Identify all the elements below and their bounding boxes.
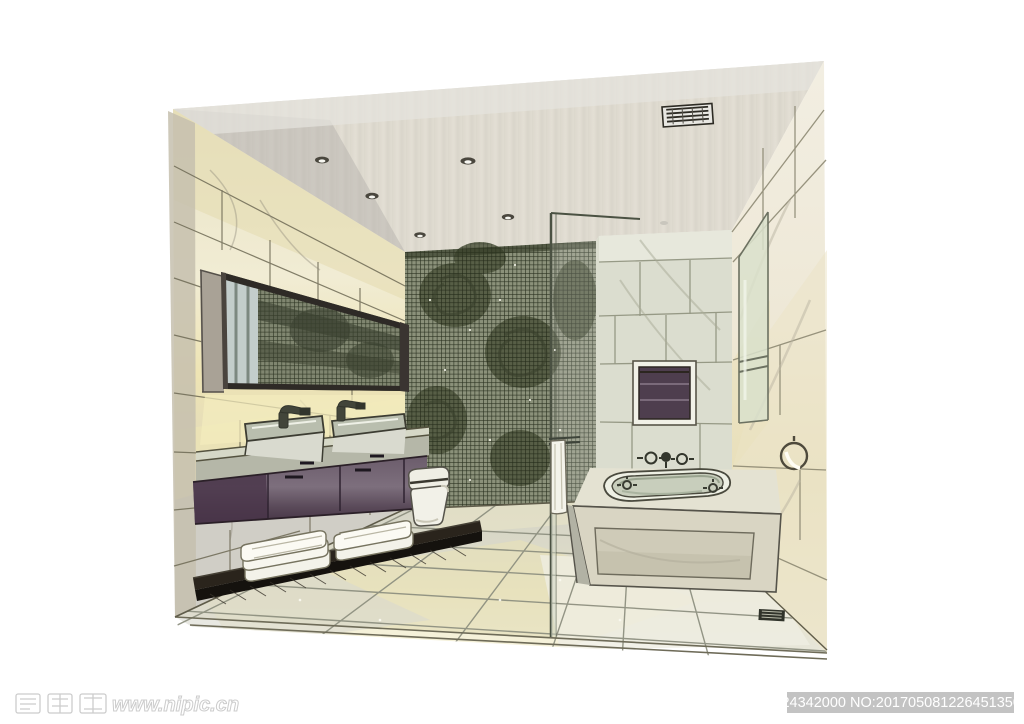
svg-text:www.nipic.cn: www.nipic.cn xyxy=(112,694,239,716)
svg-text:ID:24342000 NO:201705081226451: ID:24342000 NO:20170508122645135000 xyxy=(763,695,1024,711)
